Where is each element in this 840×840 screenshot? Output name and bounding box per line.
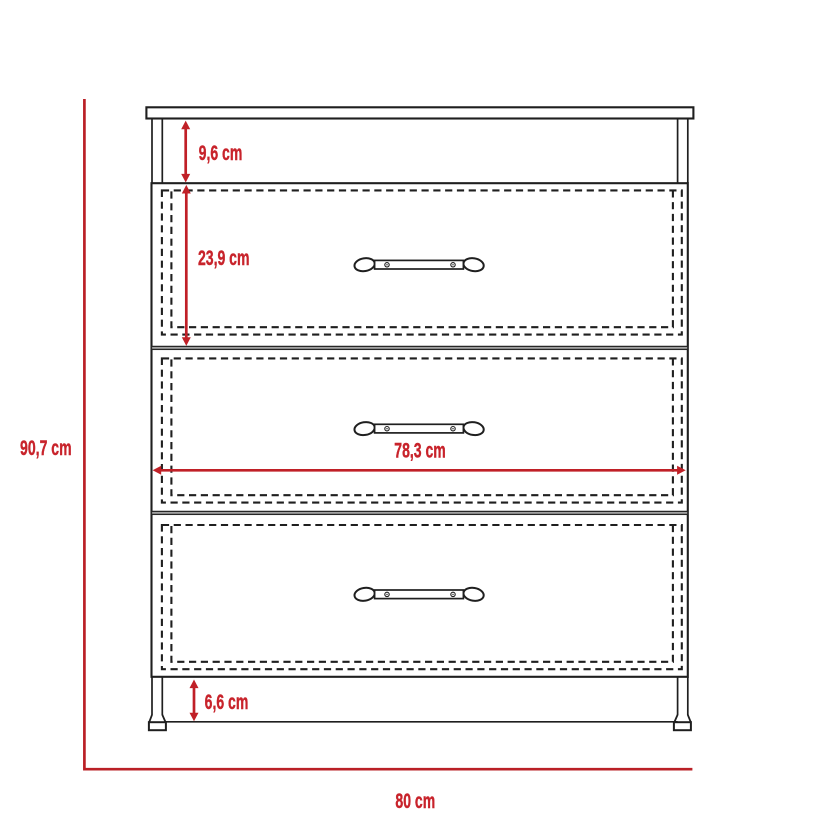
svg-text:6,6 cm: 6,6 cm <box>205 690 249 713</box>
svg-text:78,3 cm: 78,3 cm <box>394 439 445 462</box>
svg-text:23,9 cm: 23,9 cm <box>198 246 249 269</box>
svg-text:80 cm: 80 cm <box>395 789 435 812</box>
svg-text:9,6 cm: 9,6 cm <box>199 141 243 164</box>
svg-text:90,7 cm: 90,7 cm <box>20 436 71 459</box>
